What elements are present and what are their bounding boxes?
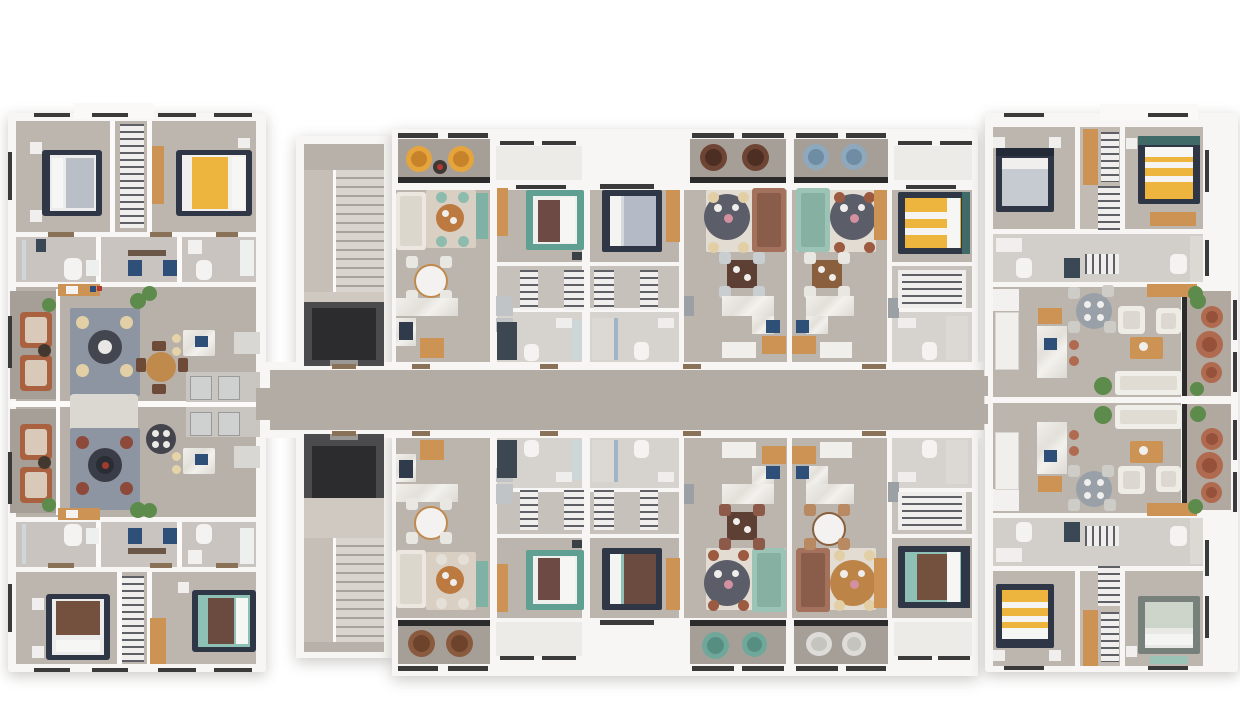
lw-window-bottom-2 [92, 668, 128, 672]
m1-shower-dark [497, 322, 517, 360]
m3-bath-sink [898, 318, 916, 328]
m1b-sofa-cushions [400, 554, 422, 604]
m2-pouf-a [708, 192, 719, 203]
rb-window-bottom-1 [1004, 666, 1044, 670]
m1-dining-chair-a [406, 256, 418, 268]
rt-bed1-nightstand-b [1049, 137, 1061, 148]
lw-laundry-shelf-top [128, 250, 166, 256]
lw-dining-chair-t3 [136, 358, 146, 372]
rb-window-right-1 [1205, 540, 1209, 576]
m1-bath-vanity [556, 318, 572, 328]
m1b-coffee-plate-a [442, 572, 449, 579]
m1-kitchen-wood-cabinet [420, 338, 444, 358]
rb-bed2-bench-teal [1150, 656, 1188, 664]
m2b-balcony-rail-a [692, 666, 734, 671]
m3b-bed-headboard [962, 546, 970, 608]
lw-balcony-plant-top [42, 298, 56, 312]
m3-kitchen-wood [792, 336, 816, 354]
lw-bath2-sink [188, 240, 202, 254]
lw-door-lintel-3 [216, 232, 238, 237]
lw-stool-bottom-a [172, 452, 181, 461]
m2b-toilet [634, 440, 649, 458]
m2-papasan-chair-b-seat [747, 149, 764, 166]
m1b-side-balcony-floor [496, 622, 582, 656]
m1b-balcony-pouf-a-seat [413, 635, 430, 652]
rt-toilet-2 [1170, 254, 1187, 274]
rt-terrace-pouf-c-seat [1206, 367, 1217, 378]
m2b-round-rug-plate-c [732, 570, 739, 577]
rb-bed1-pillows [1002, 628, 1048, 639]
m3-kitchen-counter [806, 296, 854, 316]
corridor-threshold-b2 [540, 431, 558, 436]
rt-window-top-1 [1004, 113, 1044, 117]
corridor-threshold-b3 [683, 431, 701, 436]
rt-wardrobe-wood [1083, 129, 1098, 185]
corridor-door-right-top [978, 376, 988, 396]
corridor-threshold-stair-top [332, 364, 356, 369]
rb-terrace-rail-2 [1233, 472, 1237, 512]
m3-bedroom-window [906, 185, 956, 189]
lw-stool-bottom-b [172, 465, 181, 474]
lw-wall-bed-top-1 [110, 121, 115, 232]
rt-window-top-2 [1148, 113, 1188, 117]
m1-bench-teal [476, 193, 488, 239]
m3b-balcony-pouf-b-seat [847, 637, 861, 651]
lw-storage-a-box-1 [190, 376, 212, 400]
rt-bath-vanity-dark [1064, 258, 1080, 278]
lw-bed4-blanket [208, 598, 234, 644]
rb-banquette [995, 432, 1019, 490]
m3b-kitchen-arm [806, 466, 828, 484]
lw-bath4-shelf [240, 528, 254, 564]
rt-armchair-a-seat [1123, 311, 1140, 329]
lw-pouf-top-b [120, 316, 133, 329]
lw-cabinet-top [234, 332, 260, 354]
m2-washer [684, 296, 694, 316]
m1b-pouf-a [436, 554, 447, 565]
rt-dining-chair-a [1068, 287, 1080, 299]
lw-dining-plate-d [163, 441, 170, 448]
m3-round-rug-plate-a [840, 204, 848, 212]
lw-island-bottom-sink [195, 454, 208, 465]
m3-side-balcony-rail-b [940, 141, 972, 145]
rt-bed1-pillows [1002, 158, 1048, 169]
m1-dining-chair-b [440, 256, 452, 268]
lw-window-bottom-1 [34, 668, 70, 672]
rt-window-right-1 [1205, 150, 1209, 192]
rt-terrace-plant-b [1190, 382, 1204, 396]
floorplan-3d-render [0, 0, 1240, 720]
m3-dining-plate-a [818, 266, 825, 273]
rb-shower [1190, 518, 1203, 564]
m3-balcony-rail-b [846, 133, 886, 138]
m1-closet-b [564, 270, 584, 310]
m2-dresser-wood [666, 190, 680, 242]
m3-side-balcony-rail-a [898, 141, 932, 145]
m1-cooktop [399, 322, 413, 340]
stair-landing-mid-top [304, 292, 384, 302]
m3b-closet-shelves [902, 496, 962, 526]
lw-balcony-table-top [38, 344, 51, 357]
rb-dining-plate-a [1084, 479, 1091, 486]
rb-dining-plate-c [1084, 492, 1091, 499]
rt-sofa-cushions [1120, 376, 1177, 390]
lw-lounge-chair-3-cushion [25, 429, 47, 455]
rb-wardrobe-wood [1083, 610, 1098, 666]
m2-bed-pillows [610, 196, 621, 246]
m2-kitchen-lower-cabinet [722, 342, 756, 358]
m1b-pouf-d [458, 598, 469, 609]
corridor-threshold-b1 [412, 431, 430, 436]
rb-dining-chair-c [1068, 499, 1080, 511]
m2b-bed-blanket [624, 554, 656, 604]
m2b-kitchen-counter [722, 484, 774, 504]
lw-bed3-nightstand-b [32, 646, 44, 658]
stair-landing-top [304, 144, 384, 170]
corridor-door-left-wing [256, 388, 270, 420]
m3-dining-plate-b [829, 274, 836, 281]
corridor-threshold-stair-bottom [332, 431, 356, 436]
m2b-pouf-a [708, 550, 719, 561]
lw-balcony-top-wall [56, 289, 60, 401]
rt-cabinet-white [993, 289, 1019, 311]
m3-bed-stripe-a [905, 212, 947, 219]
lw-bed3-blanket [56, 601, 100, 635]
rb-coffee-deco [1139, 446, 1148, 455]
rb-closet-2 [1098, 566, 1120, 606]
rb-stool-b [1069, 446, 1079, 456]
lw-laundry-washer-b [163, 260, 177, 276]
rt-terrace-pouf-a-seat [1206, 311, 1218, 323]
m2-round-rug-plate-a [714, 204, 722, 212]
rb-terrace-plant-a [1190, 406, 1206, 422]
lw-bath1-control [36, 239, 46, 252]
m1b-toilet [524, 440, 539, 457]
lw-stool-top-a [172, 334, 181, 343]
rt-dining-plate-b [1097, 301, 1104, 308]
rb-terrace-pouf-b-seat [1202, 458, 1217, 473]
lw-window-top-3 [158, 113, 196, 117]
lw-dining-plate-b [163, 430, 170, 437]
lw-laundry-washer-c [128, 528, 142, 544]
m1b-kitchen-wood-cabinet [420, 440, 444, 460]
rb-toilet-2 [1170, 526, 1187, 546]
m1b-dining-chair-d [440, 532, 452, 544]
m2-round-rug-plate-b [724, 214, 733, 223]
lw-bed1-blanket [66, 158, 94, 208]
m3-papasan-chair-b-seat [846, 149, 862, 165]
m2b-bed-pillows [610, 554, 621, 604]
rt-dining-chair-b [1102, 285, 1114, 297]
lw-pouf-bottom-d [120, 482, 133, 495]
lw-bath2-toilet [196, 260, 212, 280]
m1b-bath-vanity [556, 472, 572, 482]
corridor-floor [270, 370, 984, 430]
m3b-kitchen-sink [796, 466, 809, 479]
rt-stool-a [1069, 340, 1079, 350]
lw-lounge-chair-4-cushion [25, 472, 47, 498]
m2b-balcony-pouf-a-seat [707, 637, 724, 654]
lw-bath1-toilet [64, 258, 82, 280]
stair-rail-top [333, 170, 336, 292]
m3-side-balcony-floor [894, 146, 972, 180]
m1-pouf-b [458, 192, 469, 203]
m2-toilet [634, 342, 649, 360]
m3b-dining-chair-d [838, 538, 850, 550]
m1-papasan-chair-a-seat [411, 151, 427, 167]
stair-rail-bottom [333, 538, 336, 642]
rt-terrace-rail-1 [1233, 300, 1237, 340]
lw-laundry-shelf-bottom [128, 548, 166, 554]
lw-storage-b-box-2 [218, 412, 240, 436]
lw-bed4-pillows [236, 598, 248, 644]
rt-bed2-headboard [1138, 136, 1200, 145]
rt-banquette [995, 312, 1019, 370]
lw-bath1-washer [86, 260, 99, 276]
m2b-dining-chair-a [719, 504, 731, 516]
m3b-sofa-cushions [801, 553, 825, 607]
lw-vanity-bottom-basin [66, 510, 78, 518]
rt-dining-plate-d [1097, 314, 1104, 321]
lw-door-lintel-4 [48, 563, 74, 568]
rt-terrace-plant-a [1190, 293, 1206, 309]
m1-pouf-d [458, 236, 469, 247]
elevator-2-cab [312, 446, 376, 498]
corridor-threshold-t1 [412, 364, 430, 369]
stair-flight-top [336, 170, 384, 292]
lw-dining-plate-c [152, 441, 159, 448]
m3-shower [946, 316, 968, 360]
m1-bed-pillows [560, 197, 575, 243]
rb-closet-1 [1101, 612, 1119, 662]
m1b-closet-a [520, 490, 538, 530]
rt-terrace-glass-wall [1182, 289, 1187, 396]
m3-bed-stripe-b [905, 228, 947, 235]
m2b-kitchen-lower-cabinet [722, 442, 756, 458]
corridor-threshold-b4 [862, 431, 886, 436]
lw-balcony-plant-bottom [42, 498, 56, 512]
m3b-dining-chair-b [838, 504, 850, 516]
rb-terrace-rail-1 [1233, 420, 1237, 460]
m1b-shower-glass [572, 440, 582, 480]
lw-dining-chair-t1 [152, 341, 166, 351]
m3b-round-rug-plate-a [840, 570, 848, 578]
m3b-kitchen-counter [806, 484, 854, 504]
lw-balcony-table-bottom [38, 456, 51, 469]
m1b-cooktop [399, 460, 413, 478]
m3-dresser-wood [874, 190, 887, 240]
lw-bath3-washer [86, 528, 99, 544]
m1b-coffee-plate-b [450, 579, 457, 586]
m3b-dining-chair-c [804, 538, 816, 550]
rb-terrace-pouf-a-seat [1206, 433, 1218, 445]
m2b-dining-plate-a [733, 518, 740, 525]
lw-storage-b-box-1 [190, 412, 212, 436]
rb-sofa-cushions [1120, 410, 1177, 424]
rb-bed1-nightstand-a [993, 650, 1005, 661]
lw-bath3-toilet [64, 524, 82, 546]
rt-stool-b [1069, 356, 1079, 366]
rb-dining-chair-b [1102, 465, 1114, 477]
m1b-bed-nightstand [572, 540, 582, 548]
m1-papasan-chair-b-seat [453, 151, 469, 167]
rt-kitchen-island [1037, 326, 1067, 378]
m2-pouf-c [708, 242, 719, 253]
m2-closet-b [640, 270, 658, 310]
lw-pouf-bottom-a [76, 436, 89, 449]
m3b-bed-blanket [917, 554, 947, 600]
stair-landing-mid-bottom [304, 498, 384, 538]
m1b-shower-dark [497, 440, 517, 478]
m1-kitchen-counter [396, 298, 458, 316]
rt-kitchen-upper-wood [1038, 308, 1062, 324]
m2b-dresser-wood [666, 558, 680, 610]
lw-pouf-top-d [120, 364, 133, 377]
m3b-shower [946, 440, 968, 484]
lw-laundry-washer-d [163, 528, 177, 544]
m2b-kitchen-sink [766, 466, 780, 479]
m1-balcony-table-deco [437, 164, 443, 170]
m2b-bath-sink [658, 472, 674, 482]
m2-balcony-glass [690, 177, 786, 183]
m2-shower-glass [614, 318, 618, 360]
m1b-dining-chair-c [406, 532, 418, 544]
m2b-shower-glass [614, 440, 618, 482]
rt-bed2-stripe-a [1145, 162, 1193, 168]
m2b-bedroom-window [600, 620, 654, 625]
corridor-threshold-t4 [862, 364, 886, 369]
lw-balcony-bottom-wall [56, 407, 60, 515]
m3b-toilet [922, 440, 937, 458]
lw-window-top-4 [214, 113, 252, 117]
m3-pouf-d [864, 242, 875, 253]
m3-balcony-rail-a [796, 133, 838, 138]
m2-dining-plate-b [744, 274, 751, 281]
rb-dining-plate-d [1097, 492, 1104, 499]
lw-coffee-tray-top [98, 340, 112, 354]
lw-window-bottom-4 [214, 668, 252, 672]
rt-bath-sink-counter [996, 238, 1022, 252]
lw-vanity-bottom [58, 508, 100, 520]
m1-shower-glass [572, 320, 582, 360]
lw-laundry-washer-a [128, 260, 142, 276]
m1b-balcony-rail-b [448, 666, 488, 671]
m1-pouf-a [436, 192, 447, 203]
m2-pouf-d [738, 242, 749, 253]
m3b-bath-sink [898, 472, 916, 482]
lw-dresser-top [152, 146, 164, 204]
lw-bed3-pillows [56, 640, 100, 652]
right-wing-roof-step [1100, 104, 1198, 120]
m2b-washer [684, 484, 694, 504]
m2b-shower [592, 440, 614, 482]
elevator-1-cab [312, 308, 376, 360]
m3b-bed-pillows [947, 552, 960, 602]
lw-bed4-nightstand [178, 582, 189, 593]
m2b-sofa-cushions [757, 553, 781, 607]
lw-dining-plate-a [152, 430, 159, 437]
m2b-pouf-d [738, 600, 749, 611]
m1b-bench-teal [476, 561, 488, 607]
m3b-side-balcony-rail-b [938, 656, 970, 660]
rb-bed1-stripe-b [1002, 616, 1048, 622]
m2b-round-rug-plate-b [724, 580, 733, 589]
m2-pouf-b [738, 192, 749, 203]
m1-side-balcony-floor [496, 146, 582, 180]
rb-kitchen-island [1037, 422, 1067, 474]
m1b-side-balcony-rail-b [542, 656, 576, 660]
lw-window-left-3 [8, 452, 12, 504]
m2-closet-a [594, 270, 614, 310]
lw-island-top-sink [195, 336, 208, 347]
m2-balcony-rail-b [742, 133, 784, 138]
m2b-dining-table [727, 512, 757, 540]
m1-side-balcony-rail-a [500, 141, 534, 145]
m1-bedroom-window [516, 185, 566, 189]
lw-vanity-top-deco-b [97, 286, 102, 291]
stair-open-bottom [304, 538, 334, 642]
m3b-side-balcony-floor [894, 622, 972, 656]
rb-island-sink [1044, 450, 1057, 462]
m3-bed-pillows [947, 198, 960, 248]
m2b-dining-plate-b [744, 526, 751, 533]
lw-door-lintel-2 [150, 232, 172, 237]
rb-cabinet-white [993, 489, 1019, 511]
m2b-dining-chair-d [753, 538, 765, 550]
rt-bed1-headboard [996, 148, 1054, 156]
lw-bath1-glass [22, 240, 26, 280]
m2-bed-blanket [624, 196, 656, 246]
m3b-balcony-rail-b [846, 666, 886, 671]
m1b-pouf-c [436, 598, 447, 609]
lw-bed3-nightstand-a [32, 598, 44, 610]
lw-bed1-nightstand-b [30, 210, 42, 222]
m2-balcony-rail-a [692, 133, 734, 138]
m2b-closet-a [594, 490, 614, 530]
m1-coffee-plate-b [450, 217, 457, 224]
rt-coffee-deco [1139, 342, 1148, 351]
corridor-threshold-t3 [683, 364, 701, 369]
rt-dining-plate-c [1084, 314, 1091, 321]
m1-toilet [524, 344, 539, 361]
rt-island-sink [1044, 338, 1057, 350]
rb-kitchen-upper-wood [1038, 476, 1062, 492]
m1b-closet-b [564, 490, 584, 530]
m3b-round-rug-plate-b [850, 580, 859, 589]
lw-window-top-2 [92, 113, 128, 117]
m1b-washer-a [496, 484, 513, 504]
lw-dining-table-top [146, 352, 176, 382]
m1b-pouf-b [458, 554, 469, 565]
rb-terrace-pouf-c-seat [1206, 487, 1217, 498]
lw-lounge-chair-2-cushion [25, 360, 47, 386]
m2-kitchen-wood [762, 336, 786, 354]
lw-wall-bath-bottom-2 [177, 522, 182, 567]
m2b-kitchen-wood [762, 446, 786, 464]
lw-wall-bath-top-2 [177, 237, 182, 282]
rt-bath-shelf [1085, 254, 1119, 274]
rt-bed2-stripe-b [1145, 176, 1193, 182]
lw-storage-a-box-2 [218, 376, 240, 400]
m1-bed-bench-wood [497, 188, 508, 236]
rt-armchair-b-seat [1161, 313, 1176, 329]
lw-bed2-nightstand [238, 138, 250, 148]
m3b-balcony-pouf-a-seat [811, 637, 827, 651]
m3-dining-chair-b [838, 252, 850, 264]
m1b-balcony-rail-a [398, 666, 438, 671]
rt-bed2-nightstand [1126, 138, 1137, 149]
m2-papasan-chair-a-seat [705, 149, 722, 166]
